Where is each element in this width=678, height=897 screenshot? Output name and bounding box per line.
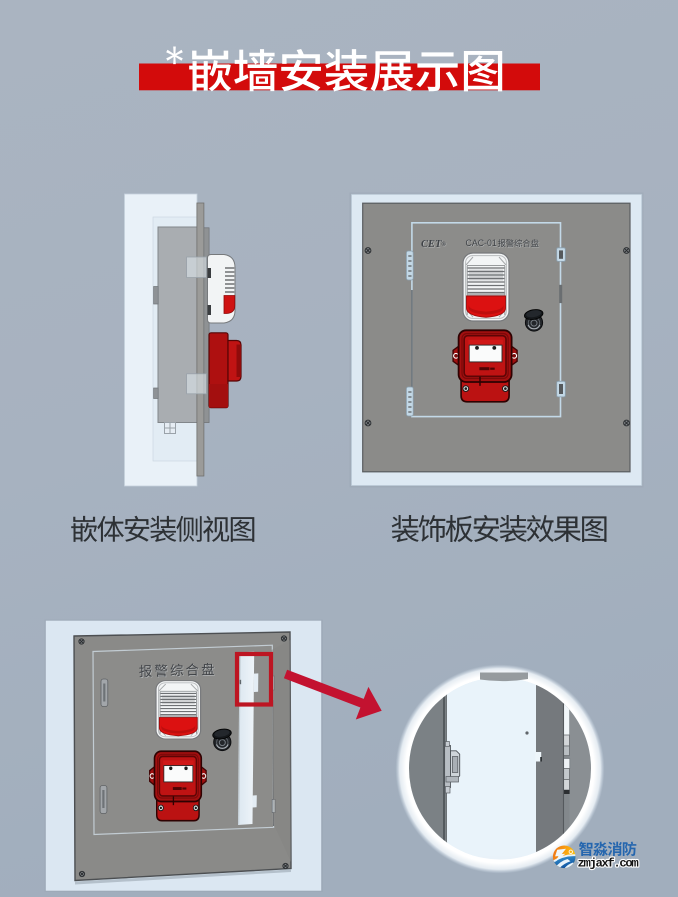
svg-text:zmjaxf.com: zmjaxf.com [578,857,639,871]
svg-text:CAC-01: CAC-01 [466,238,497,248]
